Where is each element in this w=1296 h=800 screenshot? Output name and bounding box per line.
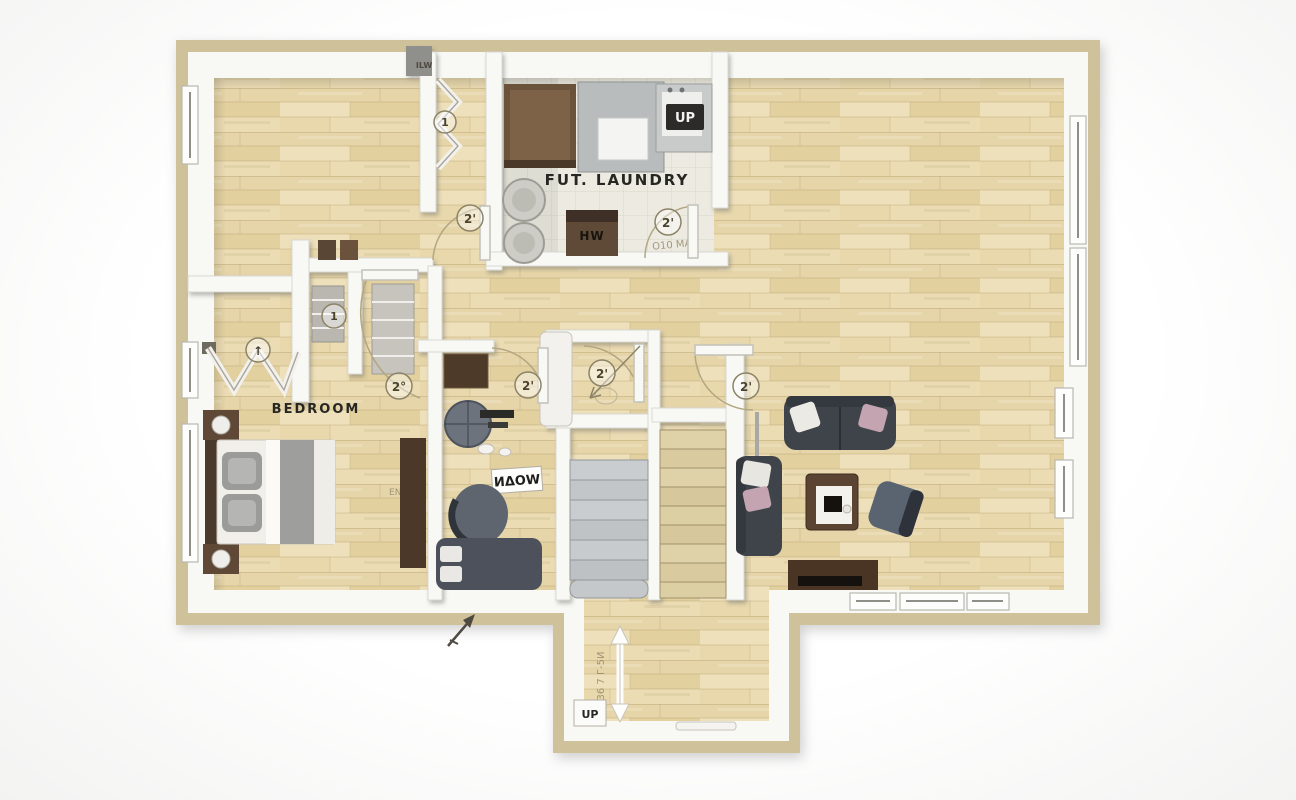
- bed-pillow-1-inner: [228, 458, 256, 484]
- bed-sheet-fold: [266, 440, 280, 544]
- tv-console: [788, 560, 878, 590]
- floor-plan-page: UP HW FUT. LAUNDRY O10 MA 1 ILW 1 ↑ BE: [0, 0, 1296, 800]
- entry-threshold: [676, 722, 736, 730]
- entry-dimension: 36 7 Г-5И: [596, 652, 607, 701]
- bed-blanket: [280, 440, 314, 544]
- daybed-cushion-1: [440, 546, 462, 562]
- washer-door: [598, 118, 648, 160]
- den-wardrobe: [444, 354, 488, 388]
- door-leaf-bedroom: [362, 270, 418, 280]
- wall-note: ILW: [416, 61, 432, 70]
- den-sign-group: ИΔOW: [491, 466, 543, 493]
- nightstand-decor-top: [212, 416, 230, 434]
- wall-closet-c: [348, 272, 362, 374]
- wall-stairs-mid: [648, 330, 660, 600]
- stairs-right-flight: [660, 430, 726, 598]
- wall-stairs-left: [556, 428, 570, 600]
- closet-box-1: [318, 240, 336, 260]
- closet-shelf-unit-2: [372, 284, 414, 374]
- den-daybed: [436, 538, 542, 590]
- entry-wood-floor: [584, 585, 769, 721]
- door-leaf-laundry: [688, 205, 698, 258]
- wall-den-top: [418, 340, 494, 352]
- laundry-chip-label: UP: [675, 111, 695, 126]
- den-desk: [400, 438, 426, 568]
- den-white-item-2: [499, 448, 511, 456]
- floor-plan-canvas: UP HW FUT. LAUNDRY O10 MA 1 ILW 1 ↑ BE: [0, 0, 1296, 800]
- furnace-core: [513, 232, 535, 254]
- tag-bath-label: 2': [596, 367, 608, 381]
- hw-cabinet-top: [566, 210, 618, 222]
- tag-stair-hall-label: 2': [740, 380, 752, 394]
- door-leaf-stair-hall: [695, 345, 753, 355]
- sofa-left: [736, 456, 782, 556]
- bed-pillow-2-inner: [228, 500, 256, 526]
- coffee-table-tray: [824, 496, 842, 512]
- den-white-item-1: [478, 444, 494, 454]
- bed-foot-sheet: [314, 440, 335, 544]
- wall-bedroom-top: [188, 276, 308, 292]
- tag-bedroom-label: 2°: [392, 380, 406, 394]
- bifold-tag-label: ↑: [253, 344, 263, 358]
- tv-screen: [798, 576, 862, 586]
- tag-laundry-label: 2': [662, 216, 674, 230]
- nightstand-decor-bottom: [212, 550, 230, 568]
- laundry-counter-edge: [504, 160, 576, 168]
- laundry-room-label: FUT. LAUNDRY: [545, 171, 690, 189]
- laundry-counter-top: [510, 90, 570, 160]
- wall-den-upper: [428, 266, 442, 346]
- tag-hallway-label: 2': [464, 212, 476, 226]
- tag-den-label: 2': [522, 379, 534, 393]
- hw-cabinet-label: HW: [579, 229, 604, 243]
- sofa-top: [784, 396, 896, 450]
- faucet-dot-2: [680, 88, 685, 93]
- door-leaf-den: [538, 348, 548, 403]
- desk-items-2: [488, 422, 508, 428]
- wall-closet-a: [292, 240, 309, 402]
- wall-laundry-right: [712, 52, 728, 208]
- door-leaf-bath: [634, 344, 644, 402]
- daybed-cushion-2: [440, 566, 462, 582]
- desk-items-1: [480, 410, 514, 418]
- coffee-table-cup: [843, 505, 851, 513]
- closet-tag-label: 1: [330, 310, 338, 323]
- coffee-table: [806, 474, 858, 530]
- entry-chip-label: UP: [582, 708, 599, 721]
- stairs-left-flight: [570, 460, 648, 598]
- water-heater-core: [512, 188, 536, 212]
- pillow-white-left: [740, 460, 772, 488]
- closet-box-2: [340, 240, 358, 260]
- faucet-dot-1: [668, 88, 673, 93]
- bed-headboard: [205, 440, 217, 544]
- bedroom-label: BEDROOM: [272, 402, 361, 417]
- hall-closet-tag-label: 1: [441, 116, 449, 129]
